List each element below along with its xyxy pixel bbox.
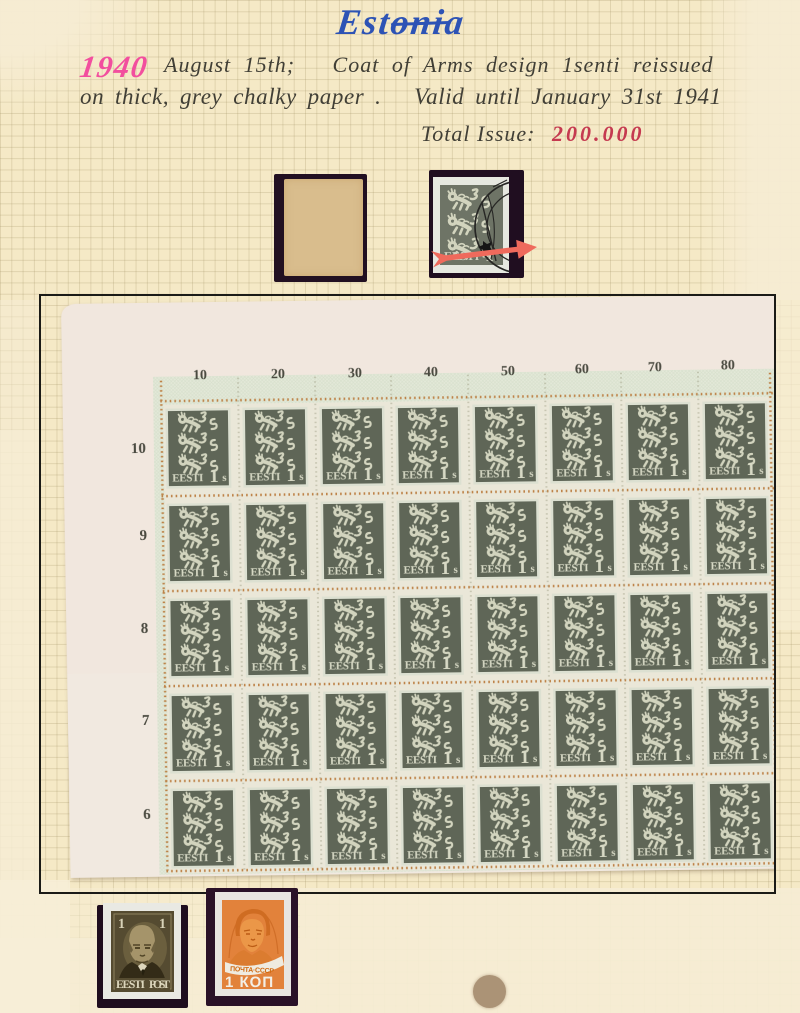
svg-text:1: 1 <box>159 917 166 932</box>
svg-text:EESTI: EESTI <box>116 979 146 991</box>
svg-text:1 КОП: 1 КОП <box>225 974 274 991</box>
svg-text:1: 1 <box>118 917 125 932</box>
svg-text:POST: POST <box>149 979 170 991</box>
